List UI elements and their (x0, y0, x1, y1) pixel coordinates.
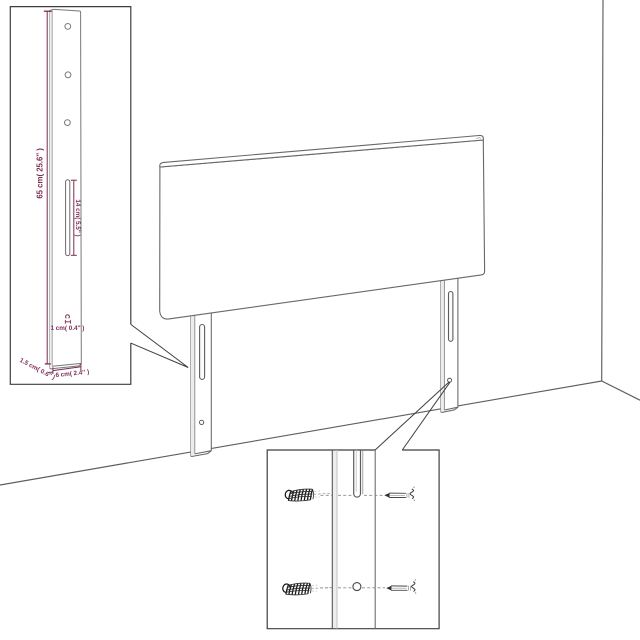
svg-text:14 cm( 5.5'' ): 14 cm( 5.5'' ) (74, 199, 81, 236)
svg-text:65 cm( 25.6'' ): 65 cm( 25.6'' ) (36, 148, 45, 199)
svg-text:1 cm( 0.4'' ): 1 cm( 0.4'' ) (51, 325, 85, 332)
